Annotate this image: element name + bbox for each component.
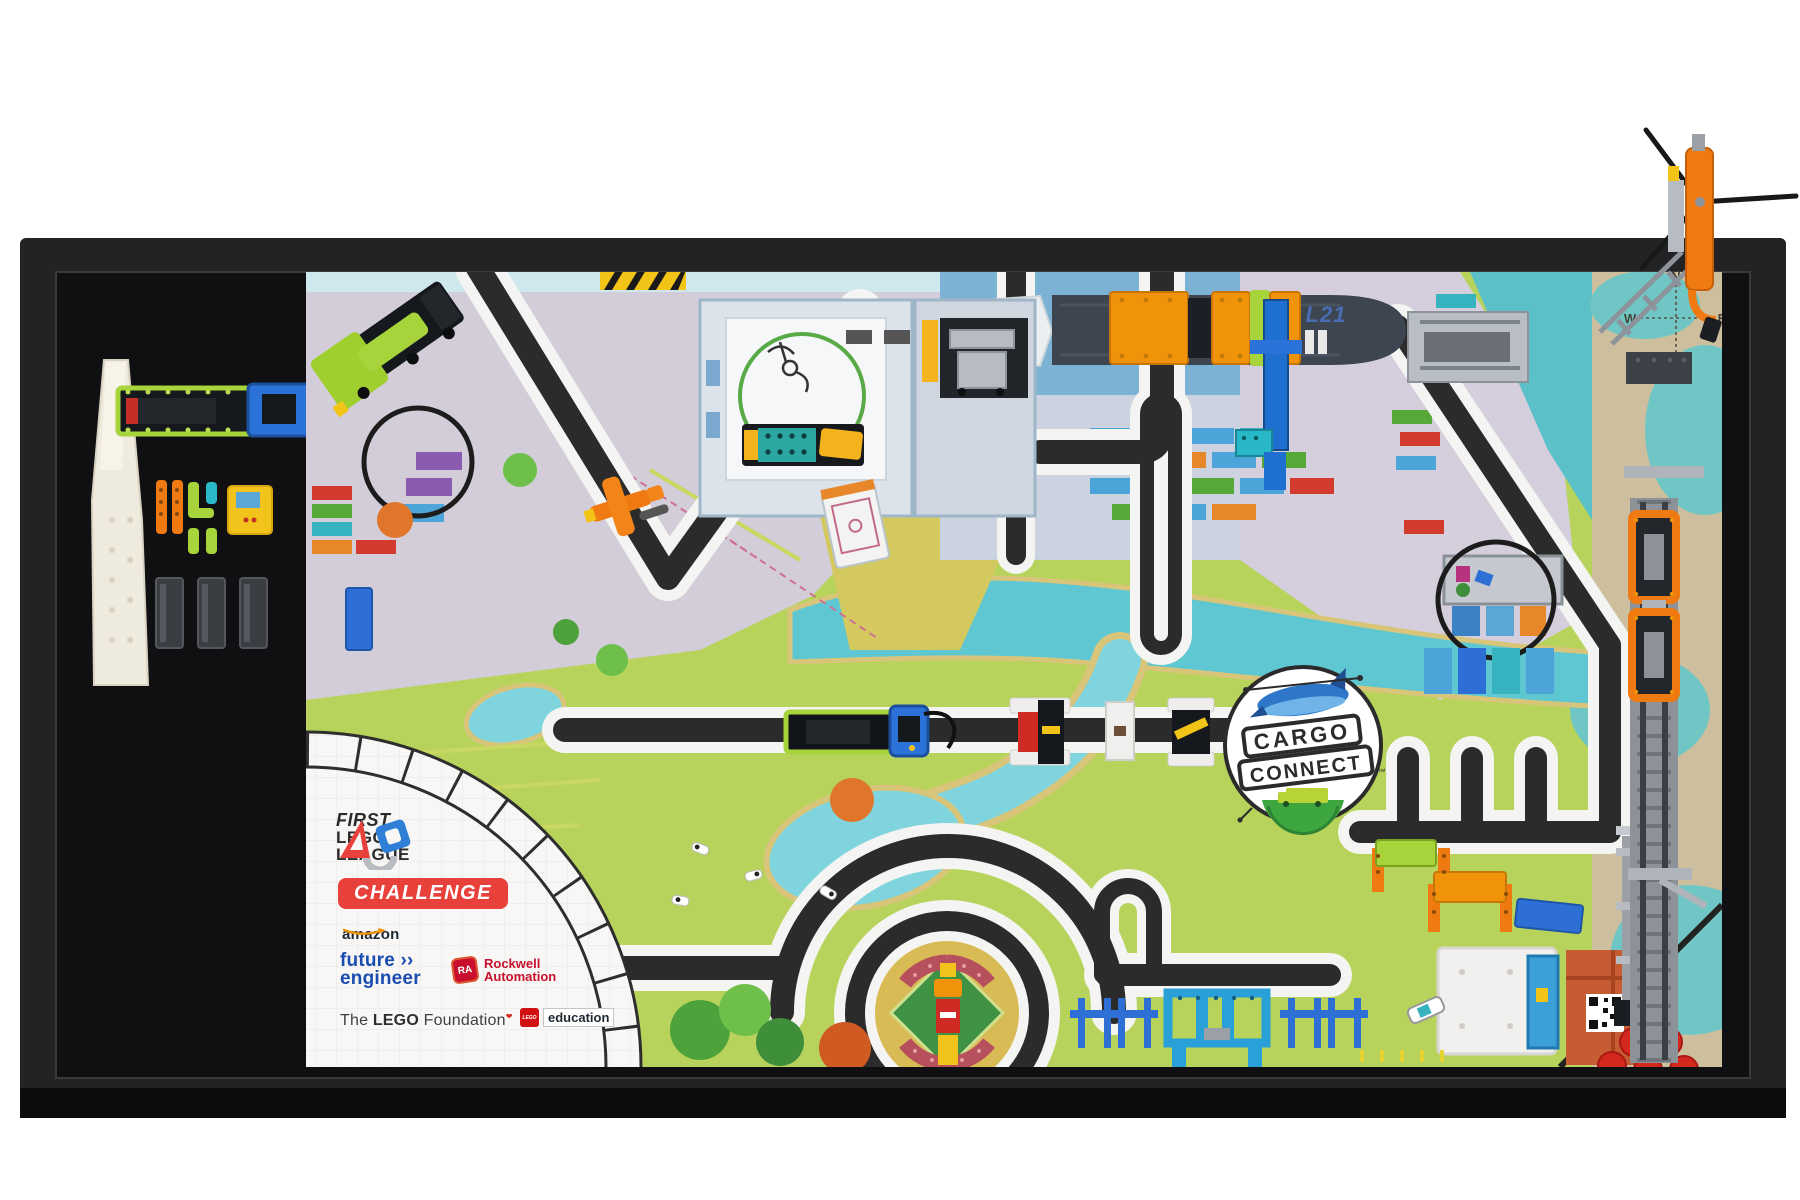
future-engineer-logo: future ›› engineer [340, 952, 421, 988]
rockwell-logo: RA Rockwell Automation [452, 957, 556, 983]
spare-containers-gray [156, 578, 267, 648]
lego-education-word: education [543, 1008, 614, 1027]
challenge-badge: CHALLENGE [338, 878, 508, 909]
crane-mission-model [1010, 698, 1070, 765]
foundation-post: Foundation [419, 1012, 506, 1029]
foundation-brand: LEGO [373, 1012, 419, 1029]
ship-registry-label: L21 [1306, 302, 1347, 327]
train-car-model-2 [1632, 612, 1676, 698]
helicopter-body [1686, 148, 1713, 290]
tm-mark: ™ [1377, 767, 1386, 777]
train-car-model [1632, 514, 1676, 600]
loader-mission-model [1168, 698, 1214, 766]
blue-container-model [346, 588, 372, 650]
lego-education-tile-icon: LEGO [520, 1008, 539, 1027]
fll-cargo-connect-table-photo: L21 [0, 0, 1800, 1200]
white-platform-model [1438, 948, 1558, 1054]
amazon-smile-icon [342, 928, 388, 936]
truck-model-staged [118, 384, 337, 436]
street-truck-model [786, 706, 954, 756]
cargo-plane-truck-model [742, 424, 864, 466]
hub-brick [228, 486, 272, 534]
lego-foundation-logo: The LEGO Foundation❤ [340, 1012, 513, 1030]
hazard-strip [600, 270, 686, 290]
challenge-text: CHALLENGE [338, 878, 508, 909]
roundabout [875, 941, 1019, 1085]
fe-line2: engineer [340, 970, 421, 988]
first-logo-mark-icon [336, 812, 418, 870]
amazon-logo: amazon [342, 928, 400, 941]
table-illustration: L21 [0, 0, 1800, 1200]
gray-crane-model [940, 318, 1028, 398]
foundation-heart-icon: ❤ [506, 1012, 513, 1021]
yellow-ramp-piece [922, 320, 938, 382]
rockwell-ra-icon: RA [450, 955, 479, 984]
fll-logo-block: FIRST LEGO LEAGUE [336, 812, 410, 863]
lego-education-logo: LEGO education [520, 1008, 614, 1027]
helicopter-base-block [1626, 352, 1692, 384]
foundation-pre: The [340, 1012, 373, 1029]
printed-quay-cranes [1408, 312, 1528, 382]
rockwell-line2: Automation [484, 970, 556, 983]
crate-latch [1114, 726, 1126, 736]
